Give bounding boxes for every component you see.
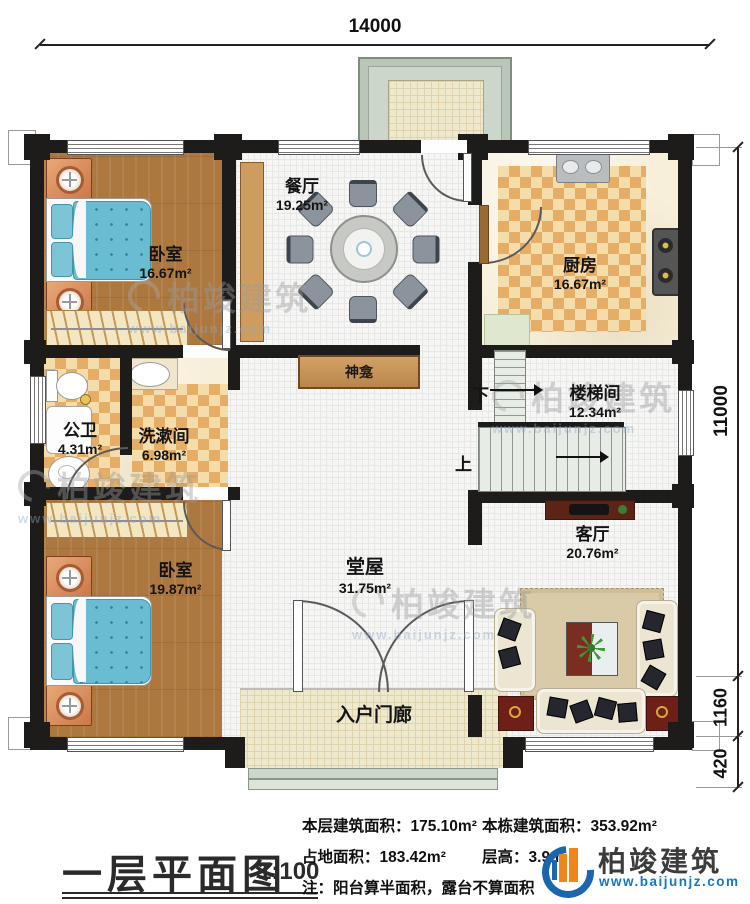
stair-up-label: 上 [455,450,472,475]
shrine-table: 神龛 [298,355,420,389]
room-label-hall: 堂屋31.75m² [300,556,430,597]
room-label-bedroom2: 卧室19.87m² [128,560,223,599]
stair-up-arrow [556,456,602,458]
room-label-bedroom1: 卧室16.67m² [118,244,213,283]
door-opening [421,140,467,153]
shower-valve [80,394,91,405]
dim-top-value: 14000 [330,16,420,38]
wall [468,262,482,358]
dim-right-steps: 420 [711,742,732,786]
wall-column [24,722,50,748]
dining-chair [287,236,314,264]
wall-column [24,340,46,364]
wall-column [214,134,242,160]
wall-column [672,340,694,364]
nightstand [46,684,92,726]
room-label-dining: 餐厅19.25m² [252,176,352,215]
window [278,140,360,155]
dim-top-line [40,44,710,46]
room-label-washroom: 洗漱间6.98m² [118,426,210,465]
stat-building-area: 本栋建筑面积：353.92m² [482,814,657,836]
back-porch-door[interactable] [463,153,472,202]
bed [46,596,152,686]
wall [468,503,482,545]
dining-chair [349,180,377,207]
wall [468,695,482,737]
company-logo-icon [542,838,590,896]
dining-table [330,215,398,283]
kitchen-door[interactable] [479,205,489,264]
wall-column [24,134,50,160]
nightstand [46,158,92,200]
bedroom2-door[interactable] [222,500,231,551]
wall-column [24,482,46,506]
stair-landing-edge [478,422,624,427]
stat-floor-area: 本层建筑面积：175.10m² [302,814,477,836]
dim-right-porch: 1160 [711,683,732,733]
stair-up-arrowhead [600,451,609,463]
room-label-stairwell: 楼梯间12.34m² [534,383,656,422]
kitchen-mat [484,314,530,346]
window [67,737,184,752]
porch-column [503,737,523,768]
room-label-kitchen: 厨房16.67m² [520,255,640,294]
dining-chair [349,296,377,323]
title-underline [62,897,318,899]
entry-door-left[interactable] [293,600,303,692]
entry-door-right[interactable] [464,600,474,692]
window [528,140,650,155]
floor-plan-page: 14000 11000 1160 420 [0,0,750,904]
tv-cabinet [545,500,635,520]
room-label-living: 客厅20.76m² [530,524,655,563]
company-url[interactable]: www.baijunjz.com [599,874,740,889]
room-label-bathroom: 公卫4.31m² [42,420,118,459]
wall-column [672,484,694,508]
washroom-sink [130,362,170,387]
porch-step [248,768,498,779]
side-table [498,696,534,731]
cushion [546,696,568,718]
wall-column [668,722,694,748]
kitchen-sink [556,153,610,183]
door-opening [183,487,228,500]
room-label-porch: 入户门廊 [300,704,448,728]
dim-right-main: 11000 [711,381,733,441]
dim-right-line [737,147,739,788]
plan-note: 注：阳台算半面积，露台不算面积 [302,876,535,898]
cushion [617,702,638,723]
stair-down-arrow [490,389,534,391]
cushion [642,638,664,660]
stair-down-label: 下 [472,381,489,406]
wardrobe [46,310,188,346]
shrine-label: 神龛 [345,362,373,382]
plant [577,634,605,662]
window [678,390,694,456]
window [525,737,654,752]
dining-chair [413,236,440,264]
stair-flight-upper [494,350,526,426]
wall [228,358,240,390]
window [67,140,184,155]
porch-column [225,737,245,768]
wardrobe [46,502,188,538]
nightstand [46,556,92,598]
porch-step [248,779,498,790]
stat-land-area: 占地面积：183.42m² [302,845,446,867]
pilaster [692,134,720,166]
wall-column [668,134,694,160]
title-underline [62,892,318,894]
bedroom1-door[interactable] [222,300,231,349]
